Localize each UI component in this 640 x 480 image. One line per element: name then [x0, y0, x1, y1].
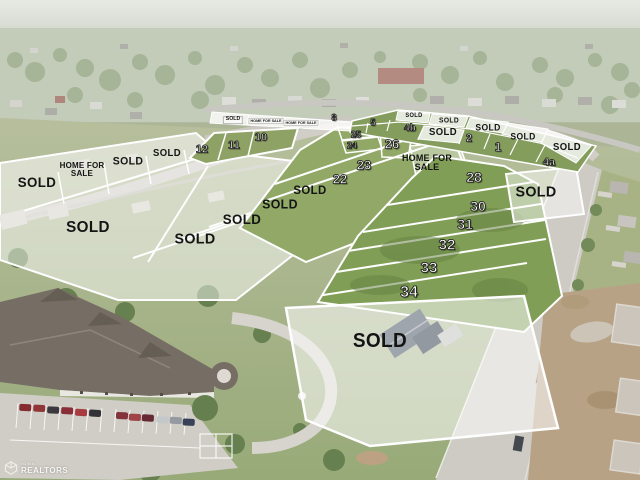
lot-number-label: 4a	[543, 157, 555, 168]
home-for-sale-label: HOME FOR SALE	[60, 162, 105, 178]
lot-number-label: 32	[439, 237, 456, 252]
sold-label: SOLD	[66, 220, 110, 236]
realtor-logo-icon	[4, 461, 18, 475]
lot-number-label: 24	[347, 141, 357, 150]
lot-labels-layer: SOLDHOME FOR SALEHOME FOR SALE85SOLD4bSO…	[0, 0, 640, 480]
sold-label: SOLD	[439, 117, 459, 124]
home-for-sale-label: HOME FOR SALE	[402, 154, 452, 172]
realtor-watermark: IOWA REALTORS	[4, 461, 68, 475]
lot-number-label: 31	[457, 217, 473, 231]
lot-number-label: 25	[351, 130, 361, 139]
sold-label: SOLD	[429, 128, 457, 138]
lot-number-label: 30	[470, 199, 486, 213]
aerial-photo: SOLDHOME FOR SALEHOME FOR SALE85SOLD4bSO…	[0, 0, 640, 480]
lot-number-label: 34	[400, 285, 418, 301]
lot-number-label: 8	[331, 113, 336, 122]
sold-label: SOLD	[515, 184, 556, 199]
sold-label: SOLD	[18, 175, 56, 189]
sold-label: SOLD	[262, 197, 298, 210]
lot-number-label: 1	[495, 141, 502, 153]
lot-number-label: 23	[357, 158, 371, 171]
sold-label: SOLD	[353, 331, 407, 351]
lot-number-label: 12	[196, 144, 208, 155]
lot-number-label: 2	[466, 133, 472, 144]
sold-label: SOLD	[153, 149, 181, 159]
lot-number-label: 26	[385, 137, 399, 150]
lot-number-label: 5	[370, 118, 375, 127]
home-for-sale-sign: HOME FOR SALE	[284, 120, 319, 126]
lot-number-label: 11	[228, 140, 240, 151]
sold-label: SOLD	[293, 184, 326, 196]
sold-label: SOLD	[405, 113, 422, 119]
lot-number-label: 28	[466, 170, 482, 184]
sold-label: SOLD	[475, 123, 500, 132]
sold-label: SOLD	[223, 212, 261, 226]
sold-label: SOLD	[174, 231, 215, 246]
lot-number-label: 33	[421, 260, 438, 275]
sold-sign: SOLD	[223, 116, 243, 124]
lot-number-label: 22	[333, 172, 347, 185]
sold-label: SOLD	[553, 143, 581, 153]
home-for-sale-sign: HOME FOR SALE	[249, 118, 284, 124]
lot-number-label: 4b	[404, 124, 416, 134]
sold-label: SOLD	[113, 156, 144, 167]
sold-label: SOLD	[510, 132, 535, 141]
lot-number-label: 10	[255, 132, 267, 143]
watermark-org: REALTORS	[21, 466, 68, 475]
